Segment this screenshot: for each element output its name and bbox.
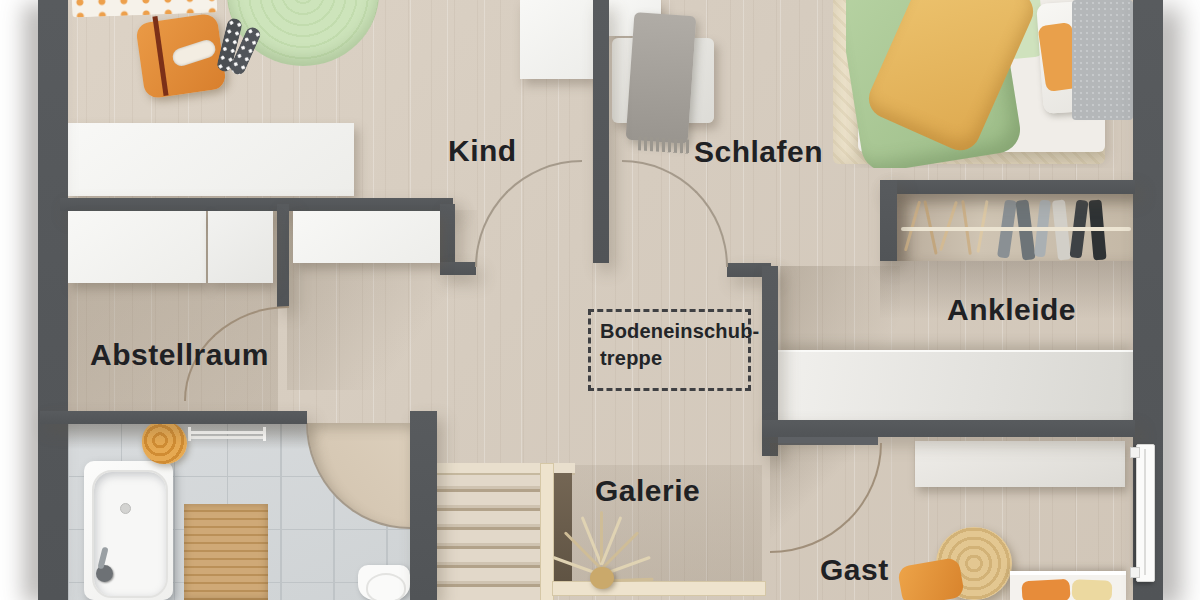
wall-closet-niche-left <box>880 180 897 261</box>
wall-bathroom-north <box>40 411 307 424</box>
bed-headboard <box>1072 0 1133 120</box>
radiator-valve-bottom <box>1130 567 1140 578</box>
staircase <box>437 473 542 600</box>
gast-shelf <box>915 441 1125 487</box>
bed-clip <box>846 0 1136 168</box>
room-label-kind: Kind <box>448 134 517 168</box>
towel-rail <box>188 427 266 441</box>
room-label-ankleide: Ankleide <box>947 293 1076 327</box>
radiator-line <box>1144 449 1146 575</box>
floor-plan: Kind Schlafen Abstellraum Ankleide Galer… <box>0 0 1200 600</box>
gast-pillow-yellow <box>1072 579 1113 600</box>
abstellraum-cabinet-left <box>68 211 206 283</box>
room-label-galerie: Galerie <box>595 474 700 508</box>
closet-niche-interior <box>897 194 1135 261</box>
kind-wardrobe <box>520 0 593 79</box>
outer-wall-left <box>38 0 68 600</box>
wall-stairwell-west <box>410 411 437 600</box>
kind-sideboard <box>68 123 354 196</box>
wall-divider-kind-schlafen <box>593 0 609 263</box>
hanger-1 <box>904 201 921 252</box>
wall-stub-abstellraum <box>277 204 289 307</box>
wall-closet-niche-top <box>880 180 1135 194</box>
wall-stub-kind-door <box>440 204 455 264</box>
gast-pillow-orange <box>1021 579 1070 600</box>
hanger-3 <box>939 201 958 251</box>
plant-pot <box>590 567 614 589</box>
radiator-valve-top <box>1130 447 1140 458</box>
bathtub <box>84 461 173 600</box>
wall-kind-south <box>60 198 453 211</box>
towel-rail-end-right <box>263 427 266 441</box>
wall-gast-north <box>762 420 1135 437</box>
room-label-gast: Gast <box>820 553 889 587</box>
dried-plant <box>540 505 670 600</box>
wooden-bath-mat <box>184 504 268 600</box>
draped-blanket <box>626 12 697 144</box>
clothes-rail <box>901 227 1131 231</box>
radiator <box>1136 444 1155 582</box>
corridor-closet <box>293 211 440 263</box>
attic-stairs-line2: treppe <box>600 345 748 372</box>
room-label-schlafen: Schlafen <box>694 135 823 169</box>
toilet-bowl <box>366 573 406 600</box>
ankleide-wardrobe <box>777 350 1133 426</box>
bathtub-drain <box>120 503 131 514</box>
toilet <box>358 565 410 600</box>
towel-rail-end-left <box>188 427 191 441</box>
attic-stairs-line1: Bodeneinschub- <box>600 318 748 345</box>
wall-foot-kind-door <box>440 262 476 275</box>
towel-rail-bar <box>188 431 266 434</box>
room-label-abstellraum: Abstellraum <box>90 338 269 372</box>
attic-stairs-annotation: Bodeneinschub- treppe <box>588 309 751 391</box>
orange-towel <box>142 421 187 464</box>
abstellraum-cabinet-right <box>208 211 273 283</box>
